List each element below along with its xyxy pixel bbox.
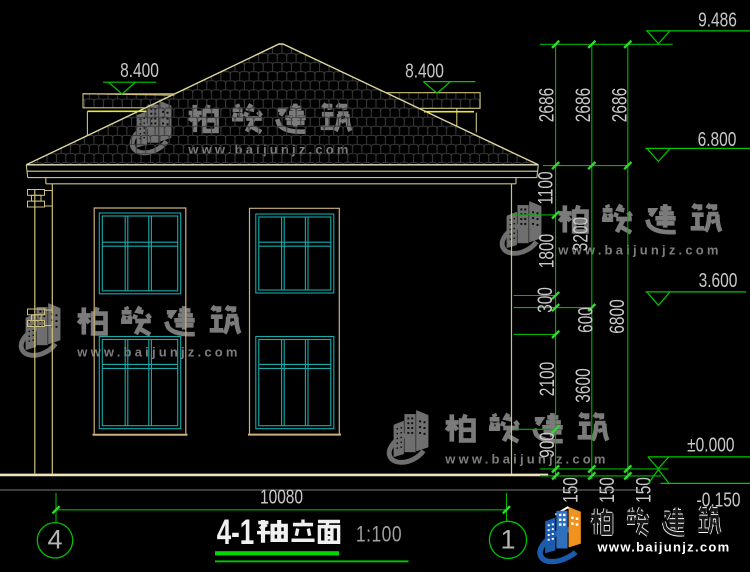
svg-text:3200: 3200 bbox=[568, 217, 592, 251]
svg-text:1800: 1800 bbox=[534, 234, 558, 268]
svg-text:8.400: 8.400 bbox=[405, 59, 444, 81]
svg-text:2686: 2686 bbox=[571, 88, 595, 122]
svg-text:3600: 3600 bbox=[571, 368, 595, 402]
svg-text:2686: 2686 bbox=[607, 88, 631, 122]
svg-text:±0.000: ±0.000 bbox=[687, 434, 734, 456]
svg-text:4: 4 bbox=[47, 525, 62, 555]
svg-text:2686: 2686 bbox=[534, 88, 558, 122]
svg-text:6.800: 6.800 bbox=[698, 128, 737, 150]
svg-text:8.400: 8.400 bbox=[120, 59, 159, 81]
svg-text:6800: 6800 bbox=[605, 299, 629, 333]
svg-text:600: 600 bbox=[573, 307, 597, 333]
svg-text:3.600: 3.600 bbox=[699, 269, 738, 291]
svg-text:1100: 1100 bbox=[533, 171, 557, 204]
svg-text:9.486: 9.486 bbox=[698, 9, 737, 31]
svg-text:900: 900 bbox=[535, 432, 559, 458]
svg-text:www.baijunjz.com: www.baijunjz.com bbox=[597, 540, 731, 555]
svg-text:4-1: 4-1 bbox=[217, 512, 255, 552]
svg-text:300: 300 bbox=[533, 287, 557, 313]
svg-text:2100: 2100 bbox=[535, 362, 559, 396]
svg-text:10080: 10080 bbox=[260, 486, 303, 508]
svg-text:1:100: 1:100 bbox=[356, 523, 402, 547]
svg-text:1: 1 bbox=[500, 525, 515, 555]
